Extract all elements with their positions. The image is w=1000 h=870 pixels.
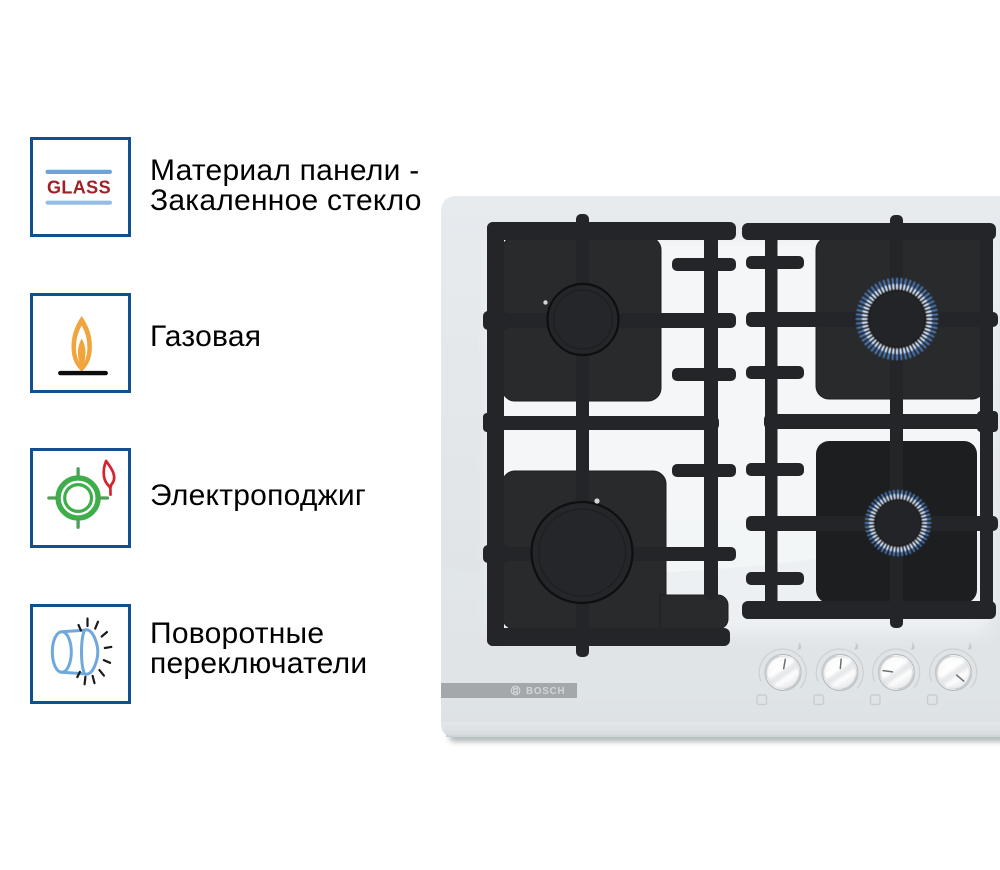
svg-text:BOSCH: BOSCH bbox=[526, 686, 565, 697]
